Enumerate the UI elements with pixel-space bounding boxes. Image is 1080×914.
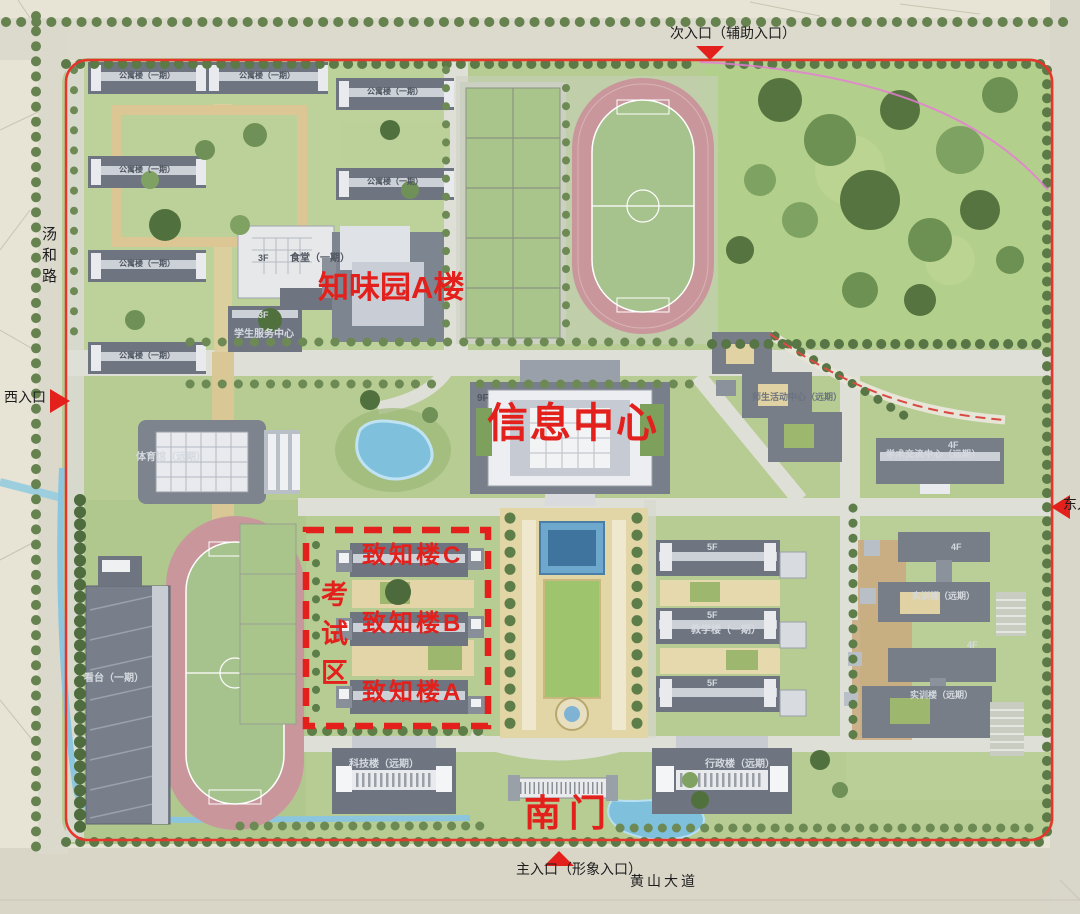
west-road-label: 汤和路 [40,226,55,289]
teaching-floor-label-2: 5F [707,611,718,620]
dorm-label-1: 公寓楼（一期） [88,72,206,80]
main-entrance-label: 主入口（形象入口） [516,864,642,878]
gymnasium-label: 体育馆（远期） [136,453,206,463]
info-center-floor-label: 9F [477,394,489,404]
north-courts [460,82,566,344]
activity-center-label: 师生活动中心（远期） [752,393,842,402]
dorm-label-2: 公寓楼（一期） [206,72,328,80]
science-building-label: 科技楼（远期） [349,760,419,770]
north-entrance-label: 次入口（辅助入口） [670,28,796,42]
annotation-south-gate: 南门 [524,795,614,832]
dorm-label-4: 公寓楼（一期） [88,166,206,174]
dorm-label-3: 公寓楼（一期） [336,88,454,96]
canteen-floor-label: 3F [258,254,269,263]
grandstand-building [86,556,170,824]
dorm-label-7: 公寓楼（一期） [88,352,206,360]
teaching-building-label: 教学楼（一期） [691,626,761,636]
teaching-floor-label-1: 5F [707,543,718,552]
grandstand-label: 看台（一期） [84,674,144,684]
dorm-label-6: 公寓楼（一期） [88,260,206,268]
training-building-label-1: 实训楼（远期） [912,592,975,601]
annotation-zhizhi-c: 致知楼C [362,544,463,568]
teaching-floor-label-3: 5F [707,679,718,688]
campus-master-plan: 知味园A楼 信息中心 考试区 致知楼C 致知楼B 致知楼A 南门 次入口（辅助入… [0,0,1080,914]
annotation-zhizhi-b: 致知楼B [362,612,463,636]
annotation-zhizhi-a: 致知楼A [362,681,463,705]
dorm-label-5: 公寓楼（一期） [336,178,454,186]
west-track [166,516,304,830]
central-plaza [500,508,648,738]
training-floor-label-2: 4F [967,641,978,650]
training-building-label-2: 实训楼（远期） [910,691,973,700]
admin-building-label: 行政楼（远期） [705,760,775,770]
north-track [572,78,714,334]
student-service-label: 学生服务中心 [234,330,294,340]
training-floor-label-1: 4F [951,543,962,552]
academic-center-label: 学术交流中心（远期） [886,450,981,459]
east-entrance-label: 东入口 [1063,499,1080,513]
south-road-label: 黄山大道 [630,876,698,890]
annotation-info-center: 信息中心 [487,403,659,444]
annotation-exam-zone: 考试区 [318,580,345,697]
west-entrance-label: 西入口 [4,392,46,406]
student-service-floor-label: 3F [258,311,269,320]
canteen-label: 食堂（一期） [290,254,350,264]
annotation-zhiwei-hall: 知味园A楼 [318,272,464,303]
